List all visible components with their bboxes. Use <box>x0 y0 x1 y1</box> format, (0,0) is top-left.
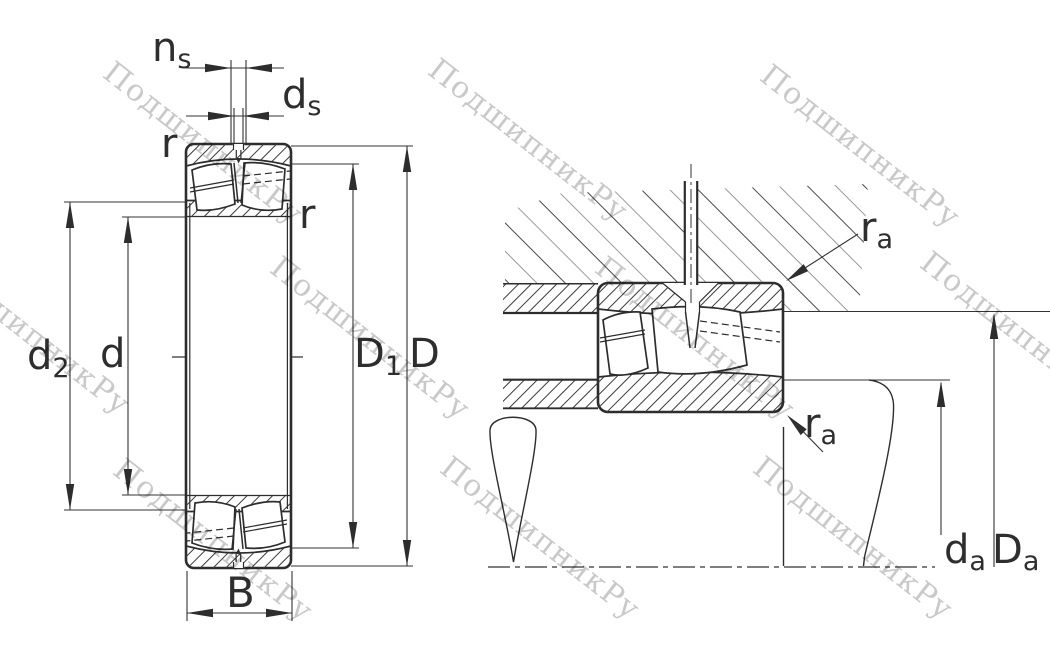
label-Da: Da <box>992 527 1039 577</box>
label-ds: ds <box>282 72 321 122</box>
mounting-section-view: ra ra da Da <box>488 164 1050 577</box>
bearing-drawing-page: ПодшипникРу ПодшипникРу ПодшипникРу Подш… <box>0 0 1050 650</box>
label-ns: ns <box>152 25 191 75</box>
label-da: da <box>944 527 986 577</box>
label-ra-bottom: ra <box>804 401 837 451</box>
housing-shoulder <box>503 284 598 313</box>
label-ra-top: ra <box>860 205 893 255</box>
shaft-shoulder <box>503 380 598 409</box>
